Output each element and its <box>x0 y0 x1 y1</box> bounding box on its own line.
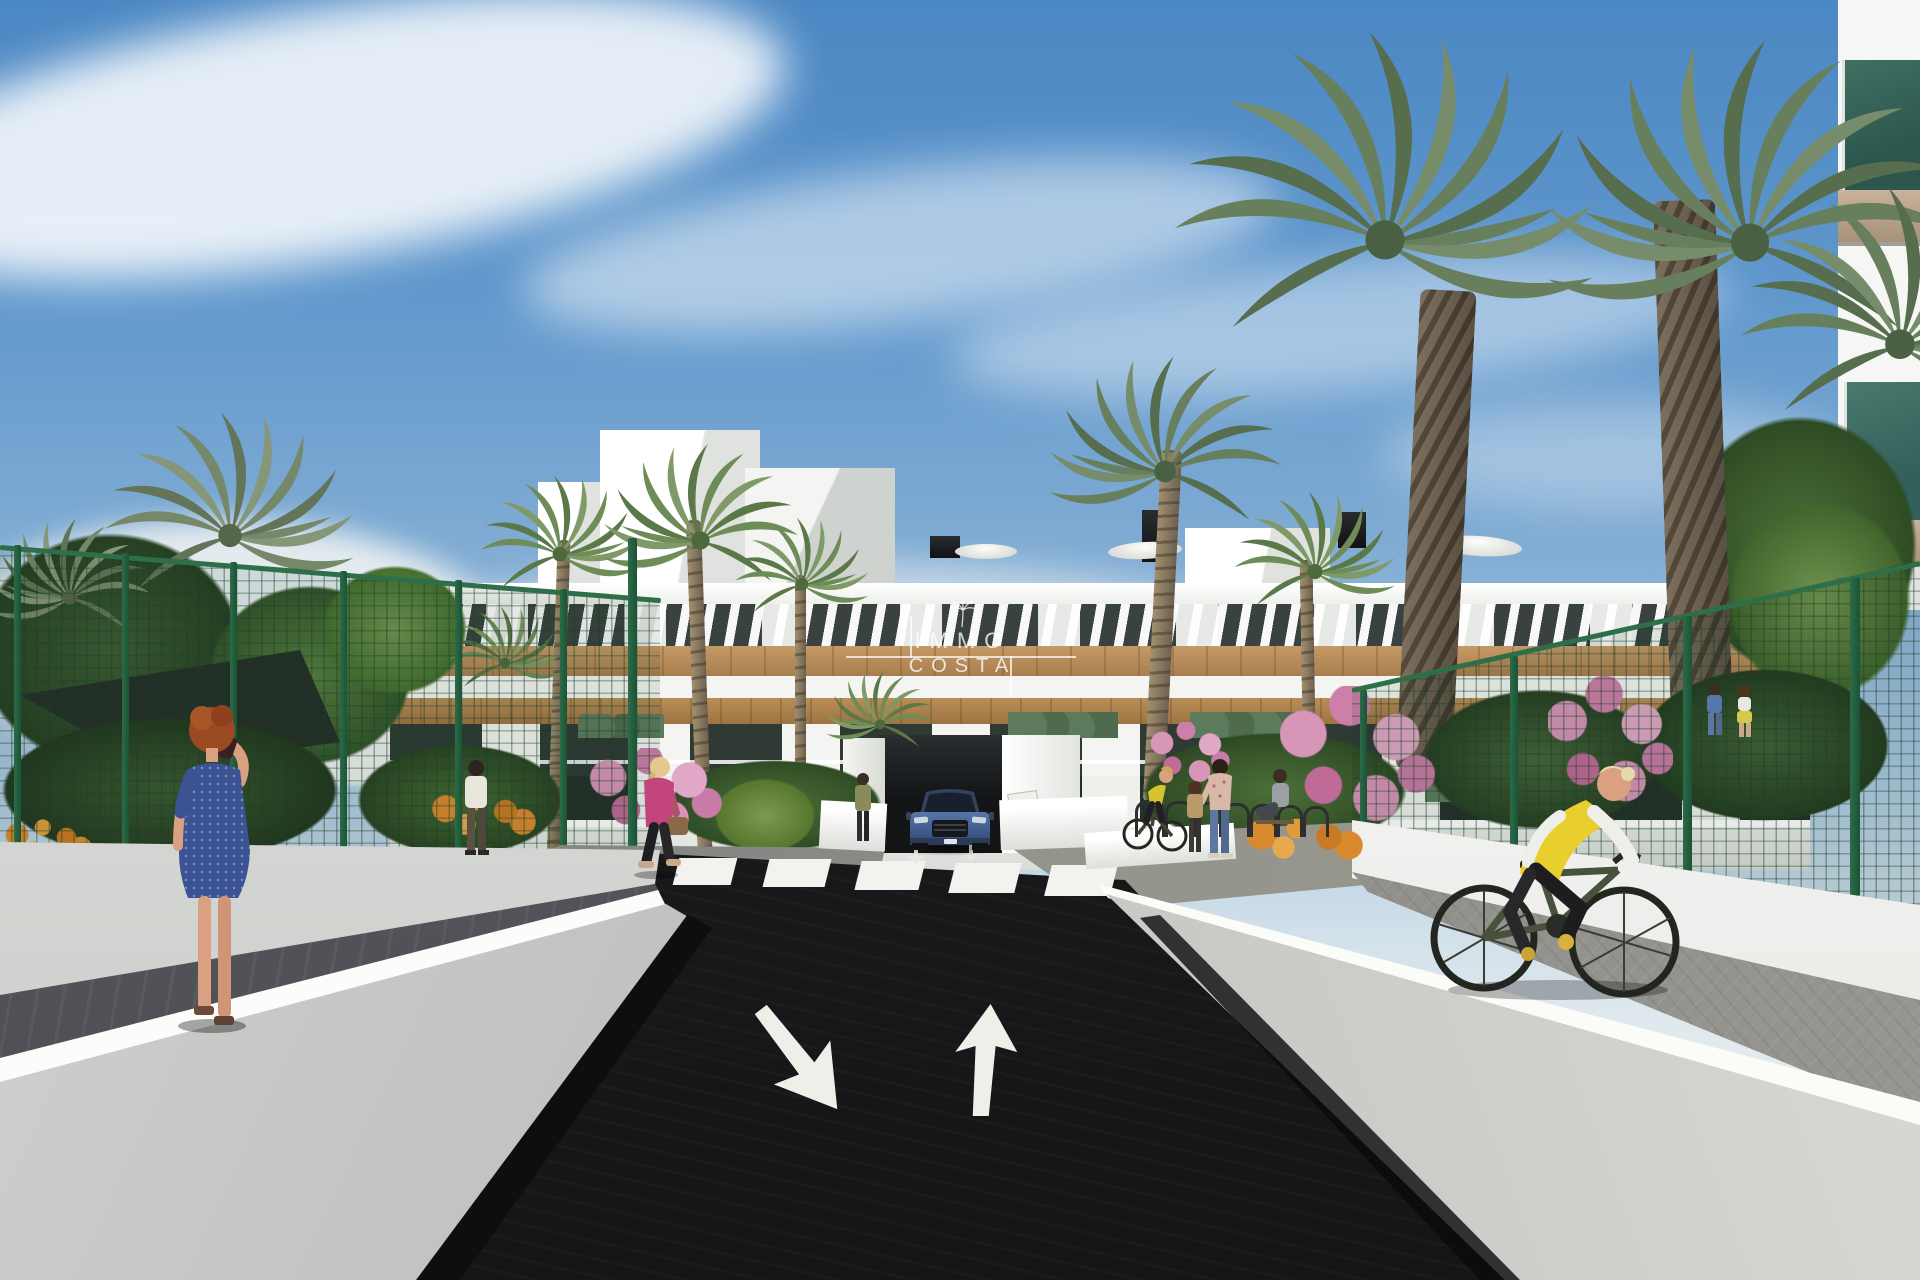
cyclist-small <box>1118 756 1190 852</box>
crosswalk-stripe <box>948 863 1021 893</box>
palm-icon <box>950 598 976 628</box>
watermark-line2: COSTA <box>845 655 1080 678</box>
person-at-ramp <box>848 772 878 850</box>
watermark-line1: IMMO <box>845 628 1080 654</box>
watermark: IMMO COSTA <box>845 598 1080 708</box>
road-arrow-down-left <box>742 992 862 1122</box>
blue-car <box>903 786 997 850</box>
roof-parasol <box>955 544 1017 559</box>
fence-post <box>560 589 567 867</box>
cyclist-yellow-vest <box>1408 712 1708 1002</box>
giant-palm-crown <box>1690 140 1920 420</box>
fence-post <box>1360 690 1367 822</box>
person-man-by-fence <box>455 758 499 866</box>
fence-post <box>1850 578 1860 896</box>
bike-rack-hoop <box>1303 806 1329 837</box>
fence-post <box>340 571 347 861</box>
watermark-rule <box>846 656 1076 658</box>
person-woman-pink-jacket <box>620 755 692 881</box>
fence-post <box>122 553 129 851</box>
person-child <box>1182 780 1208 862</box>
render-scene: IMMO COSTA <box>0 0 1920 1280</box>
roof-vent <box>930 536 960 558</box>
road-arrow-straight <box>944 998 1030 1118</box>
fence-post <box>14 545 21 845</box>
crosswalk-stripe <box>854 861 925 890</box>
crosswalk-stripe <box>763 859 832 887</box>
watermark-bracket-right <box>1010 656 1012 696</box>
person-woman-blue-dress <box>150 700 278 1035</box>
palm-crown-large <box>1010 322 1320 527</box>
person-seated-gray <box>1254 768 1298 840</box>
balcony-couple <box>1700 682 1764 740</box>
watermark-bracket-left <box>910 616 912 658</box>
